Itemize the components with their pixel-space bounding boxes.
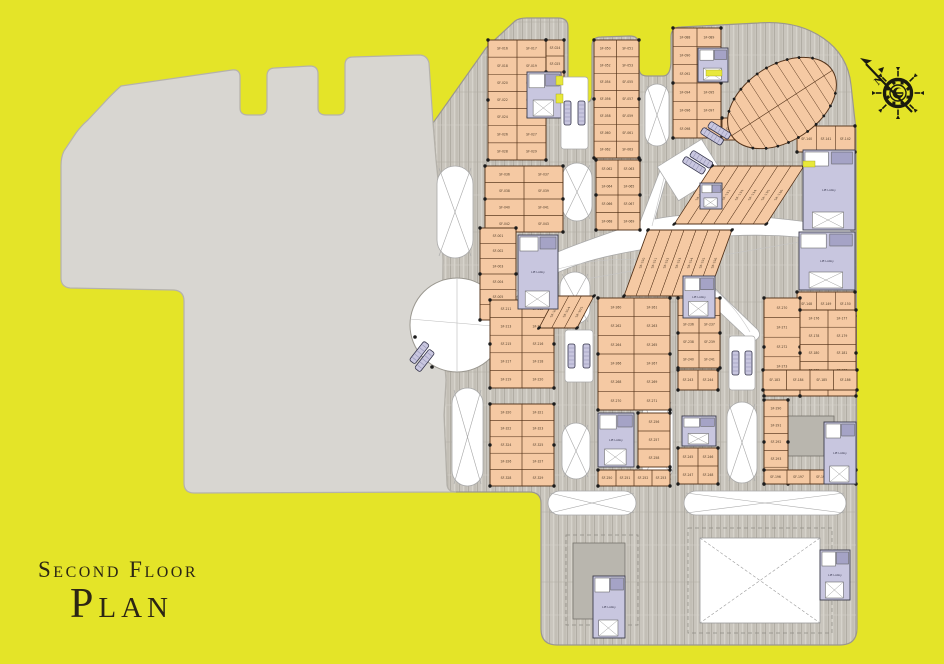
unit-label: SF-059 bbox=[622, 114, 633, 118]
column-dot bbox=[855, 388, 858, 391]
column-dot bbox=[668, 468, 671, 471]
lift-cab bbox=[684, 418, 699, 427]
lift-cab bbox=[529, 74, 544, 88]
core-label: Lift Lobby bbox=[692, 295, 706, 299]
unit-label: SF-273 bbox=[777, 365, 788, 369]
unit-label: SF-096 bbox=[680, 109, 691, 113]
column-dot bbox=[762, 482, 765, 485]
unit-label: SF-326 bbox=[501, 460, 512, 464]
lift-cab bbox=[685, 278, 699, 291]
unit-label: SF-216 bbox=[533, 342, 544, 346]
lift-cab bbox=[702, 185, 712, 193]
column-dot bbox=[855, 368, 858, 371]
column-dot bbox=[798, 308, 801, 311]
unit-label: SF-244 bbox=[703, 378, 714, 382]
stair-flight bbox=[618, 415, 632, 427]
unit-label: SF-243 bbox=[683, 378, 694, 382]
column-dot bbox=[638, 193, 641, 196]
unit-label: SF-238 bbox=[683, 340, 694, 344]
unit-label: SF-002 bbox=[493, 249, 504, 253]
unit-label: SF-257 bbox=[649, 438, 660, 442]
stair-flight bbox=[540, 237, 556, 249]
unit-label: SF-095 bbox=[704, 90, 715, 94]
lift-cab bbox=[600, 415, 616, 429]
column-dot bbox=[798, 296, 801, 299]
column-dot bbox=[762, 440, 765, 443]
unit-label: SF-058 bbox=[600, 114, 611, 118]
unit-label: SF-060 bbox=[600, 131, 611, 135]
stair-flight bbox=[830, 234, 852, 246]
column-dot bbox=[596, 408, 599, 411]
unit-label: SF-247 bbox=[683, 473, 694, 477]
unit-label: SF-252 bbox=[638, 476, 649, 480]
shop-block: SF-256SF-257SF-258 bbox=[636, 411, 671, 468]
unit-label: SF-261 bbox=[647, 305, 658, 309]
column-dot bbox=[762, 296, 765, 299]
column-dot bbox=[676, 388, 679, 391]
column-dot bbox=[478, 318, 481, 321]
unit-label: SF-057 bbox=[622, 97, 633, 101]
column-dot bbox=[676, 296, 679, 299]
column-dot bbox=[552, 342, 555, 345]
column-dot bbox=[596, 484, 599, 487]
unit-label: SF-290 bbox=[771, 407, 782, 411]
column-dot bbox=[562, 70, 565, 73]
column-dot bbox=[544, 158, 547, 161]
core-label: Lift Lobby bbox=[531, 270, 545, 274]
stair-flight bbox=[832, 152, 853, 164]
column-dot bbox=[676, 368, 679, 371]
service-core: Lift Lobby bbox=[683, 276, 715, 318]
highlight-cell bbox=[706, 70, 722, 76]
column-dot bbox=[854, 351, 857, 354]
unit-label: SF-066 bbox=[602, 202, 613, 206]
unit-label: SF-090 bbox=[680, 54, 691, 58]
escalator-bay bbox=[561, 77, 588, 149]
unit-label: SF-062 bbox=[602, 167, 613, 171]
unit-label: SF-024 bbox=[497, 115, 508, 119]
lift-cab bbox=[700, 50, 714, 60]
column-dot bbox=[638, 228, 641, 231]
unit-label: SF-264 bbox=[611, 343, 622, 347]
column-dot bbox=[592, 97, 595, 100]
unit-label: SF-028 bbox=[497, 150, 508, 154]
unit-label: SF-062 bbox=[600, 148, 611, 152]
shop-block: SF-320SF-321SF-322SF-323SF-324SF-325SF-3… bbox=[488, 402, 555, 487]
unit-label: SF-270 bbox=[611, 399, 622, 403]
column-dot bbox=[486, 38, 489, 41]
unit-label: SF-037 bbox=[538, 172, 549, 176]
unit-label: SF-325 bbox=[533, 443, 544, 447]
unit-label: SF-253 bbox=[656, 476, 667, 480]
unit-label: SF-329 bbox=[533, 476, 544, 480]
unit-label: SF-069 bbox=[624, 219, 635, 223]
core-label: Lift Lobby bbox=[833, 451, 847, 455]
unit-label: SF-029 bbox=[526, 150, 537, 154]
shop-block: SF-036SF-037SF-038SF-039SF-040SF-041SF-0… bbox=[483, 164, 564, 233]
unit-label: SF-019 bbox=[526, 64, 537, 68]
column-dot bbox=[544, 38, 547, 41]
unit-label: SF-043 bbox=[538, 222, 549, 226]
unit-label: SF-150 bbox=[840, 302, 851, 306]
unit-label: SF-003 bbox=[493, 264, 504, 268]
column-dot bbox=[486, 98, 489, 101]
unit-label: SF-258 bbox=[649, 456, 660, 460]
column-dot bbox=[798, 351, 801, 354]
shop-block: SF-243SF-244 bbox=[676, 368, 719, 391]
unit-label: SF-271 bbox=[647, 399, 658, 403]
column-dot bbox=[552, 484, 555, 487]
unit-label: SF-271 bbox=[777, 326, 788, 330]
column-dot bbox=[795, 150, 798, 153]
column-dot bbox=[718, 296, 721, 299]
column-dot bbox=[676, 446, 679, 449]
unit-label: SF-017 bbox=[526, 47, 537, 51]
unit-label: SF-213 bbox=[501, 325, 512, 329]
unit-label: SF-322 bbox=[501, 427, 512, 431]
unit-label: SF-328 bbox=[501, 476, 512, 480]
service-core bbox=[700, 183, 722, 209]
unit-label: SF-026 bbox=[497, 132, 508, 136]
column-dot bbox=[762, 398, 765, 401]
stair-flight bbox=[715, 50, 727, 60]
unit-label: SF-054 bbox=[600, 80, 611, 84]
unit-label: SF-038 bbox=[499, 189, 510, 193]
column-dot bbox=[486, 158, 489, 161]
shop-block: SF-183SF-184SF-185SF-186 bbox=[761, 368, 858, 391]
unit-label: SF-251 bbox=[620, 476, 631, 480]
unit-label: SF-256 bbox=[649, 420, 660, 424]
column-dot bbox=[795, 290, 798, 293]
unit-label: SF-039 bbox=[538, 189, 549, 193]
core-label: Lift Lobby bbox=[828, 573, 842, 577]
stair-flight bbox=[701, 418, 715, 426]
column-dot bbox=[762, 345, 765, 348]
service-core bbox=[682, 416, 716, 446]
core-label: Lift Lobby bbox=[602, 605, 616, 609]
column-dot bbox=[596, 352, 599, 355]
unit-label: SF-250 bbox=[602, 476, 613, 480]
unit-label: SF-177 bbox=[837, 317, 848, 321]
unit-label: SF-237 bbox=[704, 322, 715, 326]
shop-block: SF-211SF-212SF-213SF-214SF-215SF-216SF-2… bbox=[488, 298, 555, 389]
unit-label: SF-197 bbox=[793, 475, 804, 479]
unit-label: SF-185 bbox=[816, 378, 827, 382]
column-dot bbox=[636, 465, 639, 468]
unit-label: SF-239 bbox=[704, 340, 715, 344]
unit-label: SF-176 bbox=[809, 317, 820, 321]
column-dot bbox=[853, 124, 856, 127]
unit-label: SF-320 bbox=[501, 410, 512, 414]
unit-label: SF-089 bbox=[704, 35, 715, 39]
unit-label: SF-246 bbox=[703, 455, 714, 459]
unit-label: SF-050 bbox=[600, 47, 611, 51]
unit-label: SF-004 bbox=[493, 280, 504, 284]
unit-label: SF-268 bbox=[611, 380, 622, 384]
core-label: Lift Lobby bbox=[822, 188, 836, 192]
unit-label: SF-051 bbox=[622, 47, 633, 51]
column-dot bbox=[668, 465, 671, 468]
unit-label: SF-180 bbox=[809, 351, 820, 355]
column-dot bbox=[719, 26, 722, 29]
service-core: Lift Lobby bbox=[518, 235, 558, 309]
stair-flight bbox=[842, 424, 855, 436]
unit-label: SF-215 bbox=[501, 342, 512, 346]
unit-label: SF-042 bbox=[499, 222, 510, 226]
highlight-cell bbox=[556, 94, 563, 103]
column-dot bbox=[762, 468, 765, 471]
column-dot bbox=[596, 468, 599, 471]
unit-label: SF-269 bbox=[647, 380, 658, 384]
unit-label: SF-263 bbox=[647, 324, 658, 328]
unit-label: SF-293 bbox=[771, 457, 782, 461]
unit-label: SF-219 bbox=[501, 377, 512, 381]
column-dot bbox=[676, 331, 679, 334]
escalator-bay bbox=[729, 336, 755, 390]
column-dot bbox=[552, 386, 555, 389]
service-core: Lift Lobby bbox=[799, 232, 855, 290]
unit-label: SF-020 bbox=[497, 81, 508, 85]
unit-label: SF-040 bbox=[499, 205, 510, 209]
lift-cab bbox=[595, 578, 609, 592]
column-dot bbox=[716, 482, 719, 485]
unit-label: SF-142 bbox=[840, 137, 851, 141]
unit-label: SF-092 bbox=[680, 72, 691, 76]
unit-label: SF-061 bbox=[622, 131, 633, 135]
column-dot bbox=[761, 368, 764, 371]
column-dot bbox=[716, 388, 719, 391]
unit-label: SF-262 bbox=[611, 324, 622, 328]
unit-label: SF-025 bbox=[550, 62, 561, 66]
unit-label: SF-016 bbox=[497, 47, 508, 51]
column-dot bbox=[718, 331, 721, 334]
unit-label: SF-094 bbox=[680, 90, 691, 94]
shop-block: SF-088SF-089SF-090SF-091SF-092SF-093SF-0… bbox=[671, 26, 722, 139]
shop-block: SF-260SF-261SF-262SF-263SF-264SF-265SF-2… bbox=[596, 296, 671, 411]
column-dot bbox=[488, 484, 491, 487]
lift-cab bbox=[822, 552, 836, 566]
column-dot bbox=[638, 158, 641, 161]
plan-title-floor: Second Floor bbox=[38, 558, 198, 581]
column-dot bbox=[671, 136, 674, 139]
unit-label: SF-266 bbox=[611, 361, 622, 365]
unit-label: SF-088 bbox=[680, 35, 691, 39]
lift-cab bbox=[801, 234, 826, 248]
unit-label: SF-184 bbox=[793, 378, 804, 382]
north-arrow-head bbox=[860, 58, 872, 64]
column-dot bbox=[668, 484, 671, 487]
core-label: Lift Lobby bbox=[609, 438, 623, 442]
column-dot bbox=[596, 296, 599, 299]
unit-label: SF-041 bbox=[538, 205, 549, 209]
column-dot bbox=[488, 342, 491, 345]
unit-label: SF-272 bbox=[777, 345, 788, 349]
escalator-bay bbox=[565, 330, 593, 382]
column-dot bbox=[594, 158, 597, 161]
shop-block: SF-245SF-246SF-247SF-248 bbox=[676, 446, 719, 485]
compass-rose: N bbox=[860, 58, 924, 119]
unit-label: SF-179 bbox=[837, 334, 848, 338]
unit-label: SF-183 bbox=[769, 378, 780, 382]
unit-label: SF-001 bbox=[493, 234, 504, 238]
column-dot bbox=[636, 411, 639, 414]
unit-label: SF-063 bbox=[622, 148, 633, 152]
service-core: Lift Lobby bbox=[820, 550, 850, 600]
column-dot bbox=[798, 394, 801, 397]
unit-label: SF-052 bbox=[600, 63, 611, 67]
unit-label: SF-055 bbox=[622, 80, 633, 84]
unit-label: SF-265 bbox=[647, 343, 658, 347]
column-dot bbox=[854, 308, 857, 311]
unit-label: SF-267 bbox=[647, 361, 658, 365]
column-dot bbox=[594, 228, 597, 231]
unit-label: SF-241 bbox=[704, 357, 715, 361]
column-dot bbox=[762, 394, 765, 397]
shop-block: SF-062SF-063SF-064SF-065SF-066SF-067SF-0… bbox=[594, 158, 641, 231]
unit-label: SF-056 bbox=[600, 97, 611, 101]
unit-label: SF-140 bbox=[801, 137, 812, 141]
column-dot bbox=[488, 386, 491, 389]
column-dot bbox=[514, 272, 517, 275]
unit-label: SF-248 bbox=[703, 473, 714, 477]
unit-label: SF-260 bbox=[611, 305, 622, 309]
plan-title: Second Floor Plan bbox=[38, 558, 198, 625]
unit-label: SF-027 bbox=[526, 132, 537, 136]
column-dot bbox=[552, 402, 555, 405]
stair-flight bbox=[712, 185, 721, 192]
column-dot bbox=[562, 38, 565, 41]
column-dot bbox=[592, 38, 595, 41]
column-dot bbox=[676, 482, 679, 485]
column-dot bbox=[668, 296, 671, 299]
unit-label: SF-218 bbox=[533, 360, 544, 364]
highlight-cell bbox=[803, 161, 815, 167]
unit-label: SF-098 bbox=[680, 127, 691, 131]
unit-label: SF-063 bbox=[624, 167, 635, 171]
unit-label: SF-211 bbox=[501, 307, 512, 311]
unit-label: SF-186 bbox=[840, 378, 851, 382]
column-dot bbox=[561, 230, 564, 233]
unit-label: SF-178 bbox=[809, 334, 820, 338]
column-dot bbox=[668, 411, 671, 414]
unit-label: SF-067 bbox=[624, 202, 635, 206]
unit-label: SF-321 bbox=[533, 410, 544, 414]
lift-cab bbox=[520, 237, 538, 251]
unit-label: SF-291 bbox=[771, 423, 782, 427]
stair-flight bbox=[837, 552, 849, 564]
column-dot bbox=[594, 193, 597, 196]
plan-title-word: Plan bbox=[38, 583, 198, 625]
highlight-cell bbox=[556, 76, 563, 85]
column-dot bbox=[671, 81, 674, 84]
core-label: Lift Lobby bbox=[820, 259, 834, 263]
unit-label: SF-068 bbox=[602, 219, 613, 223]
unit-label: SF-236 bbox=[683, 322, 694, 326]
unit-label: SF-196 bbox=[770, 475, 781, 479]
unit-label: SF-148 bbox=[801, 302, 812, 306]
column-dot bbox=[637, 97, 640, 100]
unit-label: SF-220 bbox=[533, 377, 544, 381]
column-dot bbox=[853, 290, 856, 293]
unit-label: SF-022 bbox=[497, 98, 508, 102]
lift-cab bbox=[826, 424, 840, 438]
column-dot bbox=[561, 197, 564, 200]
unit-label: SF-065 bbox=[624, 184, 635, 188]
unit-label: SF-323 bbox=[533, 427, 544, 431]
column-dot bbox=[716, 368, 719, 371]
unit-label: SF-064 bbox=[602, 184, 613, 188]
stair-flight bbox=[701, 278, 714, 290]
unit-label: SF-149 bbox=[821, 302, 832, 306]
unit-label: SF-053 bbox=[622, 63, 633, 67]
column-dot bbox=[483, 164, 486, 167]
column-dot bbox=[716, 446, 719, 449]
unit-label: SF-181 bbox=[837, 351, 848, 355]
column-dot bbox=[637, 38, 640, 41]
unit-label: SF-141 bbox=[821, 137, 832, 141]
column-dot bbox=[488, 298, 491, 301]
service-core bbox=[698, 48, 728, 82]
floor-plan-stage: SF-016SF-017SF-018SF-019SF-020SF-021SF-0… bbox=[0, 0, 944, 664]
shop-block: SF-050SF-051SF-052SF-053SF-054SF-055SF-0… bbox=[592, 38, 640, 159]
shop-block: SF-250SF-251SF-252SF-253 bbox=[596, 468, 671, 487]
column-dot bbox=[478, 272, 481, 275]
column-dot bbox=[488, 443, 491, 446]
unit-label: SF-005 bbox=[493, 295, 504, 299]
unit-label: SF-018 bbox=[497, 64, 508, 68]
stair-flight bbox=[611, 578, 624, 590]
unit-label: SF-217 bbox=[501, 360, 512, 364]
column-dot bbox=[761, 388, 764, 391]
unit-label: SF-270 bbox=[777, 306, 788, 310]
unit-label: SF-245 bbox=[683, 455, 694, 459]
service-core: Lift Lobby bbox=[598, 413, 634, 467]
column-dot bbox=[488, 402, 491, 405]
column-dot bbox=[514, 226, 517, 229]
anchor-mass bbox=[61, 55, 456, 493]
column-dot bbox=[668, 352, 671, 355]
service-core: Lift Lobby bbox=[593, 576, 625, 638]
column-dot bbox=[786, 440, 789, 443]
unit-label: SF-292 bbox=[771, 440, 782, 444]
unit-label: SF-324 bbox=[501, 443, 512, 447]
column-dot bbox=[478, 226, 481, 229]
column-dot bbox=[671, 26, 674, 29]
service-core: Lift Lobby bbox=[824, 422, 856, 484]
unit-label: SF-327 bbox=[533, 460, 544, 464]
column-dot bbox=[552, 443, 555, 446]
unit-label: SF-036 bbox=[499, 172, 510, 176]
column-dot bbox=[561, 164, 564, 167]
column-dot bbox=[720, 116, 723, 119]
unit-label: SF-097 bbox=[704, 109, 715, 113]
unit-label: SF-240 bbox=[683, 357, 694, 361]
column-dot bbox=[786, 398, 789, 401]
column-dot bbox=[483, 197, 486, 200]
column-dot bbox=[854, 394, 857, 397]
column-dot bbox=[668, 408, 671, 411]
unit-label: SF-024 bbox=[550, 46, 561, 50]
